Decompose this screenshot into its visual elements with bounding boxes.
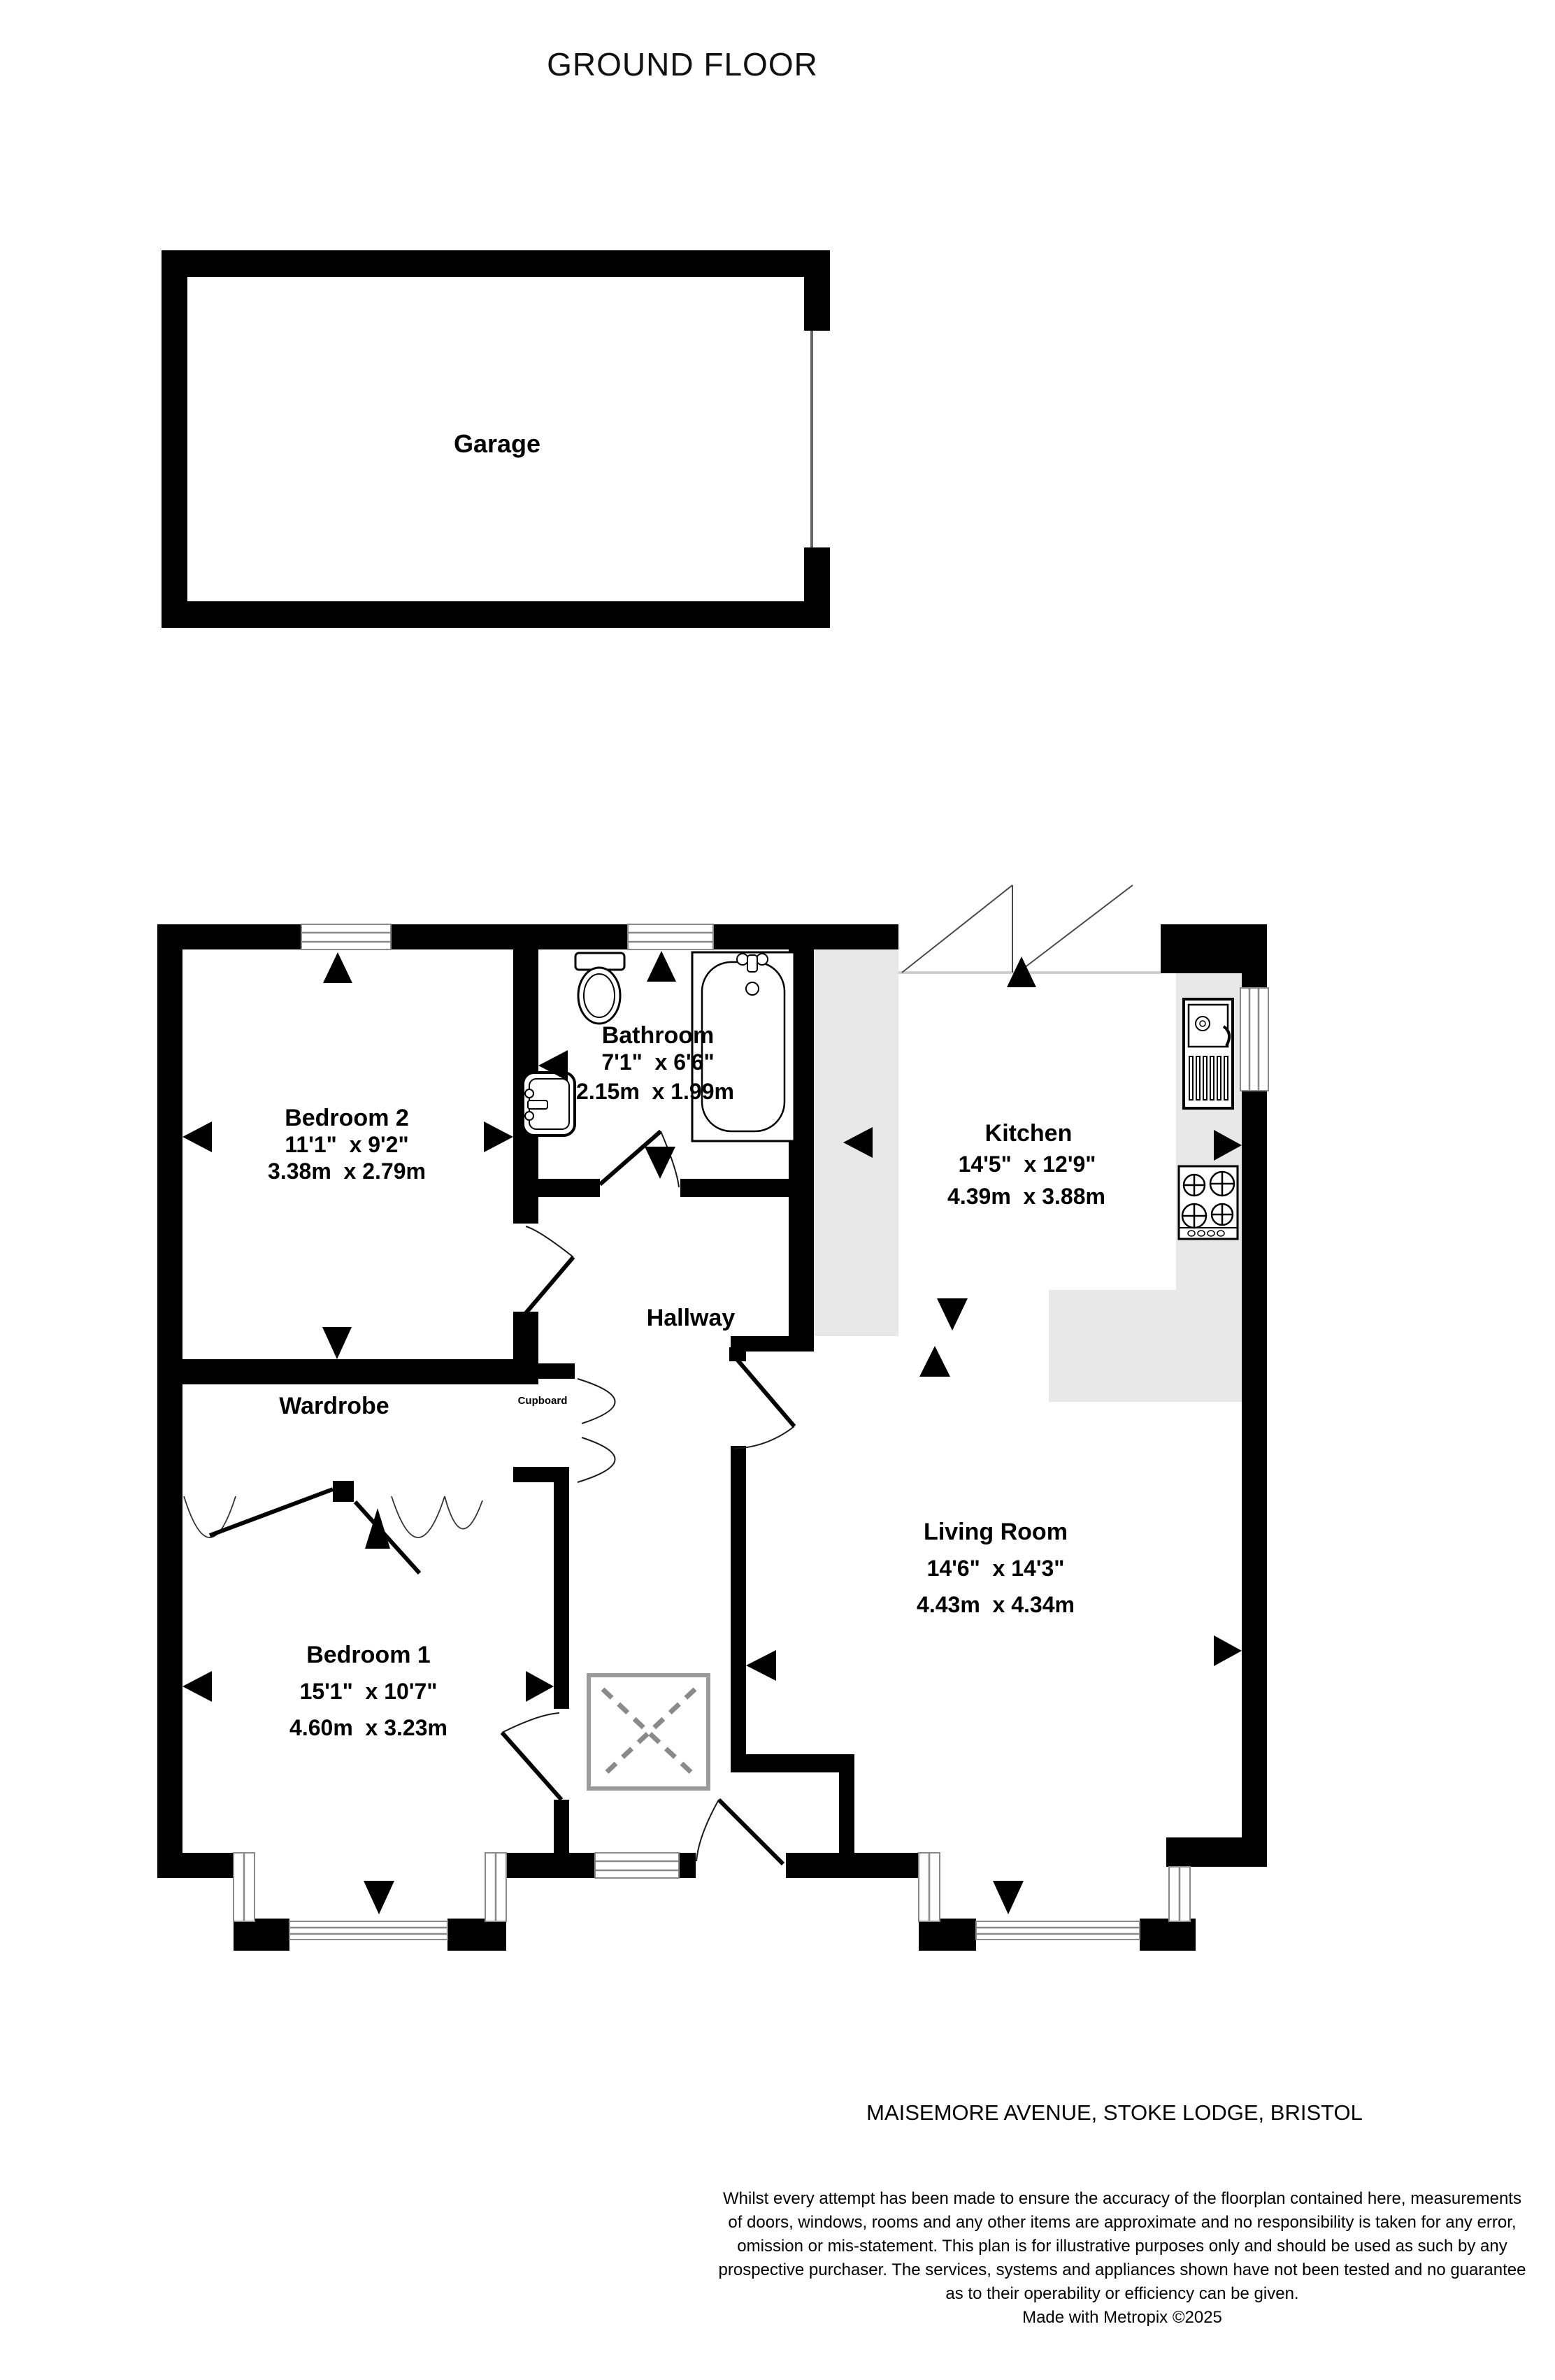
address-line: MAISEMORE AVENUE, STOKE LODGE, BRISTOL <box>866 2100 1363 2125</box>
door-arc-icon <box>696 1800 783 1864</box>
measure-arrow-icon <box>323 952 352 983</box>
measure-arrow-icon <box>526 1671 554 1702</box>
svg-text:11'1" x 9'2": 11'1" x 9'2" <box>285 1132 408 1157</box>
skylight-icon <box>589 1675 708 1788</box>
bedroom1-label: Bedroom 1 15'1" x 10'7" 4.60m x 3.23m <box>289 1642 447 1740</box>
bedroom2-label: Bedroom 2 11'1" x 9'2" 3.38m x 2.79m <box>268 1105 426 1184</box>
measure-arrow-icon <box>322 1327 352 1359</box>
wardrobe-label: Wardrobe <box>279 1393 389 1419</box>
disclaimer-line: omission or mis-statement. This plan is … <box>737 2237 1507 2256</box>
disclaimer-line: as to their operability or efficiency ca… <box>945 2284 1298 2303</box>
basin-icon <box>523 1073 575 1135</box>
svg-text:14'6" x 14'3": 14'6" x 14'3" <box>927 1556 1065 1581</box>
svg-text:7'1" x 6'6": 7'1" x 6'6" <box>601 1049 714 1075</box>
measure-arrow-icon <box>182 1671 212 1702</box>
svg-text:15'1" x 10'7": 15'1" x 10'7" <box>300 1679 438 1704</box>
disclaimer-line: of doors, windows, rooms and any other i… <box>728 2213 1516 2232</box>
kitchen-sink-icon <box>1184 999 1233 1108</box>
svg-text:Bedroom 1: Bedroom 1 <box>306 1642 431 1668</box>
door-arc-icon <box>502 1713 561 1800</box>
hob-icon <box>1179 1166 1238 1239</box>
floorplan-page: GROUND FLOOR Garage <box>0 0 1555 2380</box>
disclaimer: Whilst every attempt has been made to en… <box>719 2189 1526 2327</box>
measure-arrow-icon <box>993 1881 1024 1914</box>
garage-door-icon <box>810 331 813 547</box>
window-icon <box>628 924 713 949</box>
measure-arrow-icon <box>645 1147 675 1179</box>
window-icon <box>1240 988 1268 1091</box>
hallway-label: Hallway <box>647 1305 736 1331</box>
door-arc-icon <box>733 1359 794 1449</box>
window-icon <box>301 924 391 949</box>
bathroom-label: Bathroom 7'1" x 6'6" 2.15m x 1.99m <box>576 1022 734 1104</box>
roof-slope-icon <box>902 885 1133 973</box>
measure-arrow-icon <box>746 1650 776 1681</box>
toilet-icon <box>575 953 624 1024</box>
svg-text:3.38m x 2.79m: 3.38m x 2.79m <box>268 1159 426 1184</box>
svg-text:Bedroom 2: Bedroom 2 <box>285 1105 409 1131</box>
measure-arrow-icon <box>182 1121 212 1152</box>
measure-arrow-icon <box>1214 1635 1242 1666</box>
window-icon <box>595 1853 679 1878</box>
metropix-credit: Made with Metropix ©2025 <box>1022 2308 1222 2327</box>
svg-text:Kitchen: Kitchen <box>985 1120 1073 1147</box>
door-arc-icon <box>526 1226 573 1313</box>
measure-arrow-icon <box>364 1881 394 1914</box>
living-room-label: Living Room 14'6" x 14'3" 4.43m x 4.34m <box>917 1519 1075 1617</box>
svg-text:Living Room: Living Room <box>924 1519 1068 1545</box>
garage-room: Garage <box>162 250 830 628</box>
measure-arrow-icon <box>484 1121 513 1152</box>
disclaimer-line: Whilst every attempt has been made to en… <box>723 2189 1521 2208</box>
wardrobe-rail-icon <box>184 1481 482 1573</box>
svg-text:4.43m x 4.34m: 4.43m x 4.34m <box>917 1592 1075 1617</box>
cupboard-label: Cupboard <box>518 1395 568 1407</box>
cupboard-doors-icon <box>578 1379 615 1482</box>
disclaimer-line: prospective purchaser. The services, sys… <box>719 2260 1526 2279</box>
garage-label: Garage <box>454 429 540 458</box>
svg-text:14'5" x 12'9": 14'5" x 12'9" <box>959 1152 1096 1177</box>
page-title: GROUND FLOOR <box>547 46 818 83</box>
svg-text:Bathroom: Bathroom <box>602 1022 715 1049</box>
measure-arrow-icon <box>919 1346 950 1377</box>
measure-arrow-icon <box>647 951 676 982</box>
kitchen-label: Kitchen 14'5" x 12'9" 4.39m x 3.88m <box>947 1120 1105 1209</box>
svg-text:2.15m x 1.99m: 2.15m x 1.99m <box>576 1079 734 1104</box>
svg-text:4.39m x 3.88m: 4.39m x 3.88m <box>947 1184 1105 1209</box>
floorplan-drawing: GROUND FLOOR Garage <box>0 0 1555 2380</box>
svg-text:4.60m x 3.23m: 4.60m x 3.23m <box>289 1715 447 1740</box>
measure-arrow-icon <box>937 1298 968 1331</box>
